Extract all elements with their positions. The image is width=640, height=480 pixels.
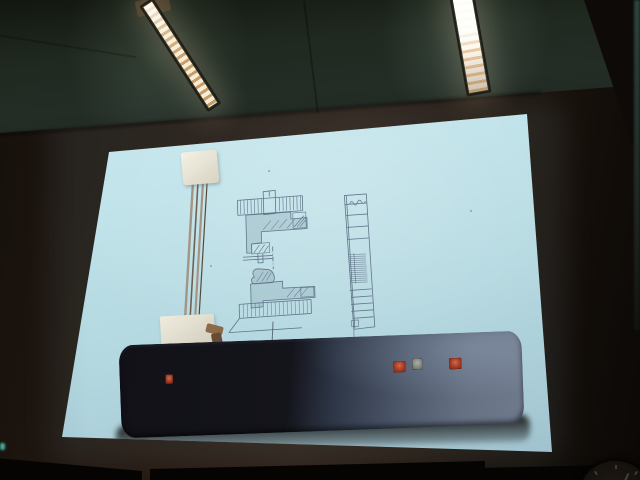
wall-edge-highlight: [634, 0, 640, 330]
clock-hand: [616, 473, 629, 480]
clock-mark: [634, 471, 638, 475]
clock-mark: [594, 471, 598, 475]
room-photo: ABCDEFGHIJKLMNOPQRSTUVWXYZ1234567890: [0, 0, 640, 480]
keyboard-key: [449, 358, 461, 369]
key-cluster-grid: [412, 358, 444, 359]
keyboard-key: [393, 361, 405, 372]
technical-drawing: [225, 188, 375, 343]
keyboard-panel: ABCDEFGHIJKLMNOPQRSTUVWXYZ1234567890: [118, 331, 524, 439]
plotter-top-box: [181, 149, 220, 185]
keyboard-key: [166, 374, 173, 383]
keyboard-key: [412, 358, 422, 369]
clock-mark: [615, 465, 617, 469]
indicator-dot: [0, 443, 5, 450]
